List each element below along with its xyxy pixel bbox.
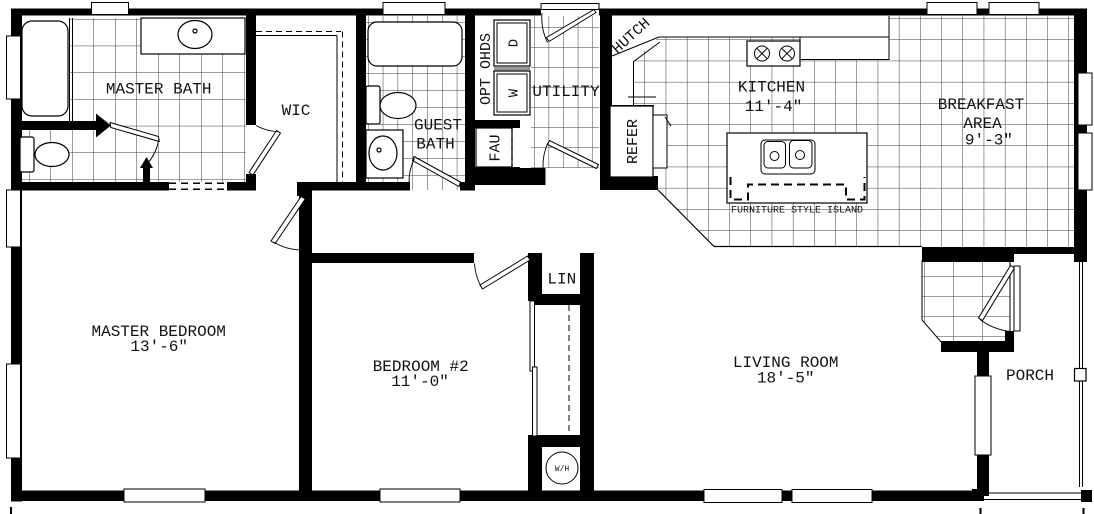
svg-text:WIC: WIC: [282, 102, 311, 120]
svg-text:18'-5": 18'-5": [757, 370, 815, 388]
svg-text:REFER: REFER: [625, 119, 642, 164]
svg-text:MASTER BATH: MASTER BATH: [106, 81, 212, 99]
svg-text:FURNITURE STYLE ISLAND: FURNITURE STYLE ISLAND: [731, 206, 863, 217]
svg-text:LIN: LIN: [547, 271, 576, 289]
svg-text:KITCHEN: KITCHEN: [738, 79, 805, 97]
svg-text:11'-0": 11'-0": [391, 373, 449, 391]
svg-text:OPT OHDS: OPT OHDS: [478, 33, 495, 105]
svg-text:D: D: [507, 39, 523, 47]
svg-text:FAU: FAU: [488, 134, 505, 161]
svg-text:9'-3": 9'-3": [965, 132, 1013, 150]
svg-text:13'-6": 13'-6": [130, 338, 188, 356]
svg-text:AREA: AREA: [963, 115, 1002, 133]
svg-text:GUEST: GUEST: [414, 117, 462, 135]
svg-text:UTILITY: UTILITY: [532, 83, 600, 101]
svg-text:BATH: BATH: [416, 136, 454, 154]
svg-text:W: W: [507, 88, 523, 97]
svg-text:W/H: W/H: [555, 465, 570, 474]
svg-text:BREAKFAST: BREAKFAST: [938, 96, 1024, 114]
svg-text:PORCH: PORCH: [1006, 367, 1054, 385]
svg-text:11'-4": 11'-4": [745, 98, 803, 116]
